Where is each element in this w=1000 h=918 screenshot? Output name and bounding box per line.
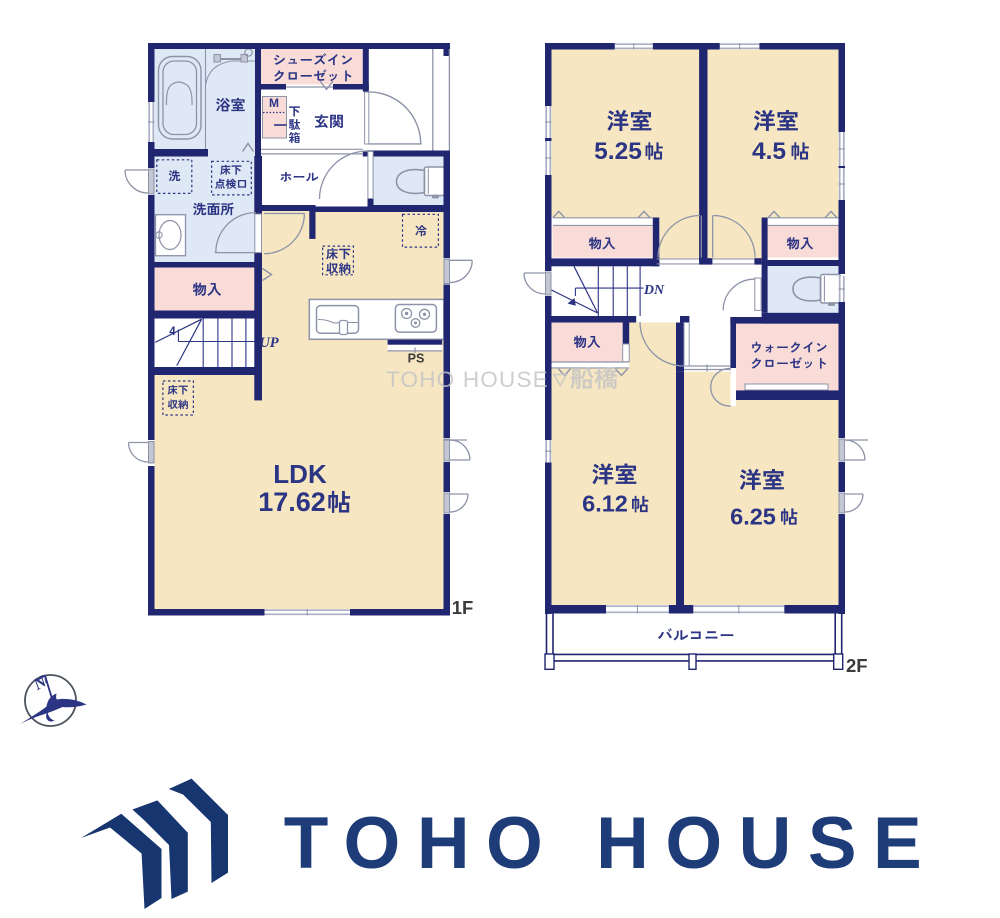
svg-text:1F: 1F [452,597,474,618]
svg-text:6.25: 6.25 [730,504,776,530]
svg-text:2F: 2F [846,655,868,676]
svg-text:4: 4 [169,326,176,338]
svg-text:DN: DN [643,283,665,298]
svg-text:4.5: 4.5 [752,138,786,165]
svg-text:M: M [269,96,279,110]
svg-text:TOHO HOUSE: TOHO HOUSE [284,803,938,884]
svg-text:LDK: LDK [273,459,327,489]
svg-text:6.12: 6.12 [582,491,628,517]
svg-text:5.25: 5.25 [594,138,642,165]
svg-text:PS: PS [408,352,425,366]
svg-text:17.62: 17.62 [258,487,326,517]
svg-text:UP: UP [259,335,278,351]
svg-text:TOHO HOUSE: TOHO HOUSE [386,367,549,392]
